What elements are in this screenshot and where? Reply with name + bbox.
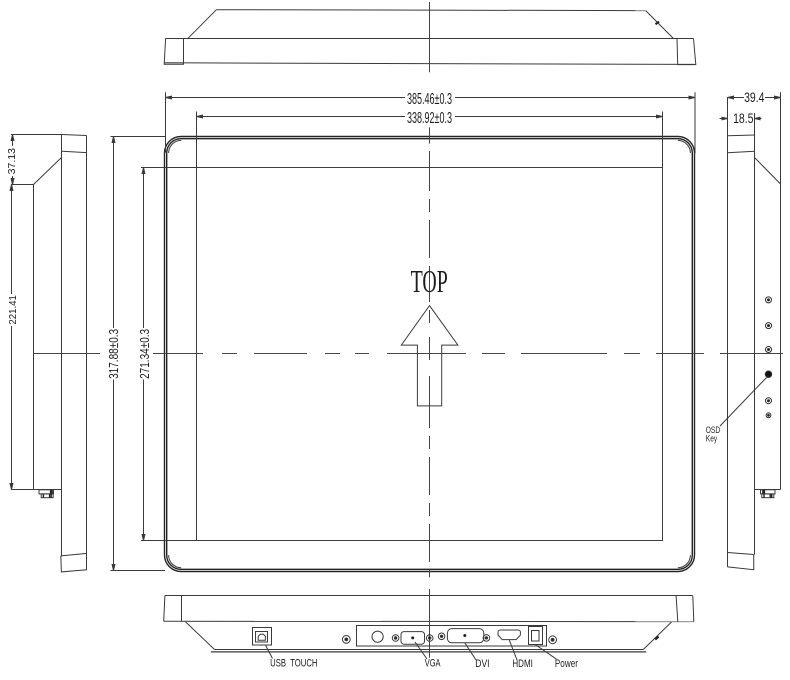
svg-text:DVI: DVI (475, 658, 489, 670)
svg-text:37.13: 37.13 (6, 148, 18, 174)
svg-text:221.41: 221.41 (7, 295, 18, 325)
svg-text:317.88±0.3: 317.88±0.3 (107, 329, 122, 379)
svg-text:271.34±0.3: 271.34±0.3 (138, 329, 153, 379)
svg-text:USB TOUCH: USB TOUCH (270, 657, 317, 670)
svg-text:VGA: VGA (425, 656, 441, 669)
svg-text:Key: Key (706, 433, 717, 443)
svg-text:HDMI: HDMI (512, 658, 533, 671)
svg-text:39.4: 39.4 (744, 90, 765, 106)
svg-text:18.5: 18.5 (733, 110, 754, 126)
svg-text:338.92±0.3: 338.92±0.3 (407, 109, 452, 126)
svg-text:Power: Power (555, 658, 579, 671)
svg-text:TOP: TOP (411, 263, 448, 299)
svg-text:385.46±0.3: 385.46±0.3 (407, 91, 452, 108)
